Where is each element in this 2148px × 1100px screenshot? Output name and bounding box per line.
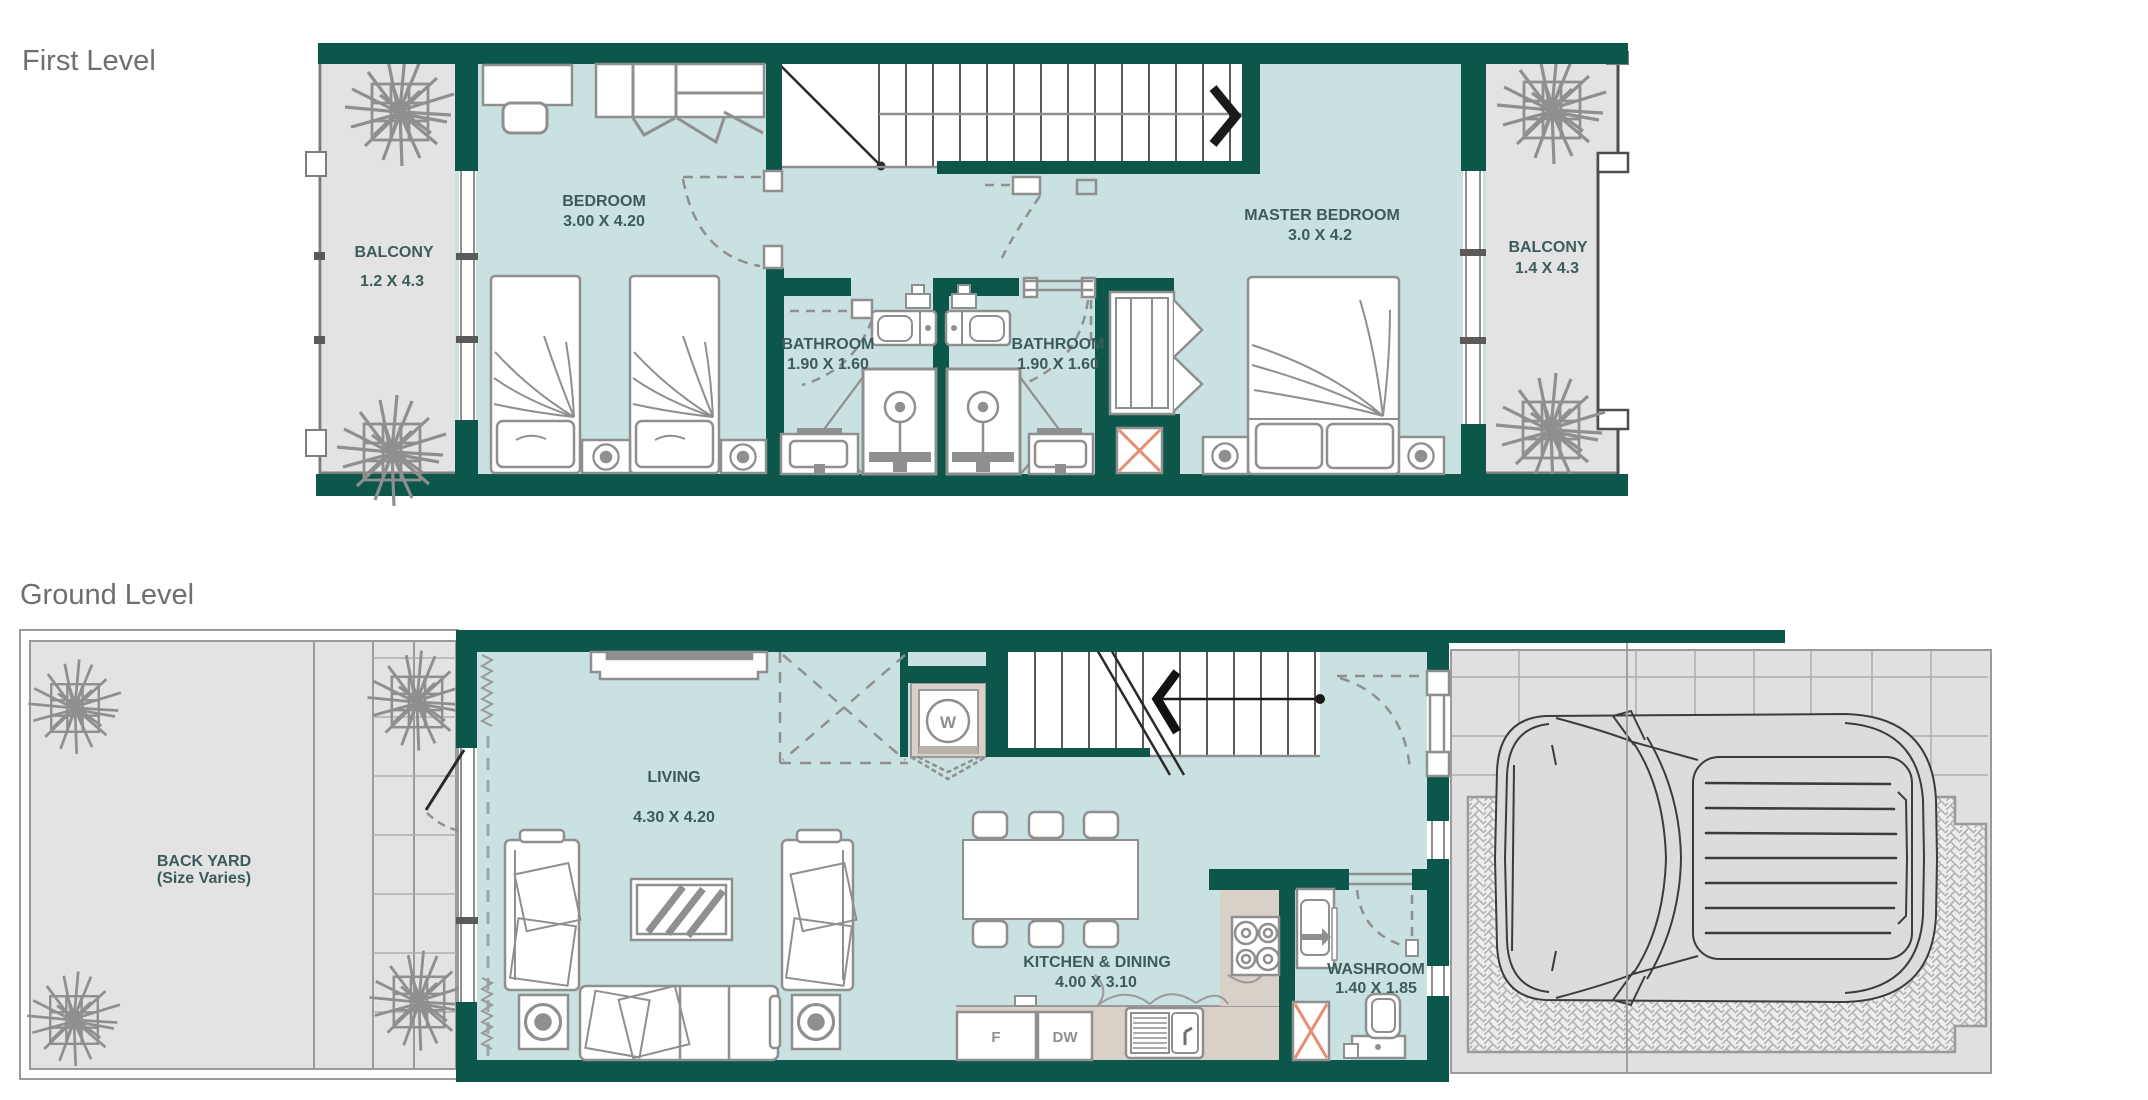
svg-text:4.30 X 4.20: 4.30 X 4.20 [633, 809, 715, 826]
svg-text:1.4 X 4.3: 1.4 X 4.3 [1515, 260, 1579, 277]
svg-text:WASHROOM: WASHROOM [1327, 961, 1425, 978]
svg-text:4.00 X 3.10: 4.00 X 3.10 [1055, 974, 1137, 991]
svg-text:Ground Level: Ground Level [20, 579, 194, 611]
svg-text:BACK YARD: BACK YARD [157, 853, 251, 870]
svg-text:3.0 X 4.2: 3.0 X 4.2 [1288, 227, 1352, 244]
svg-text:KITCHEN & DINING: KITCHEN & DINING [1023, 954, 1171, 971]
svg-text:3.00 X 4.20: 3.00 X 4.20 [563, 213, 645, 230]
svg-text:MASTER BEDROOM: MASTER BEDROOM [1244, 207, 1400, 224]
svg-text:1.2 X 4.3: 1.2 X 4.3 [360, 273, 424, 290]
svg-text:BALCONY: BALCONY [1508, 239, 1587, 256]
svg-text:W: W [940, 713, 957, 732]
svg-text:BATHROOM: BATHROOM [781, 336, 874, 353]
svg-text:1.90 X 1.60: 1.90 X 1.60 [787, 356, 869, 373]
svg-text:LIVING: LIVING [647, 769, 700, 786]
svg-text:F: F [991, 1029, 1000, 1046]
svg-text:1.90 X 1.60: 1.90 X 1.60 [1017, 356, 1099, 373]
svg-text:BATHROOM: BATHROOM [1011, 336, 1104, 353]
svg-text:DW: DW [1053, 1029, 1079, 1046]
svg-text:BALCONY: BALCONY [354, 244, 433, 261]
svg-text:1.40 X 1.85: 1.40 X 1.85 [1335, 980, 1417, 997]
svg-text:(Size Varies): (Size Varies) [157, 870, 251, 887]
svg-text:First Level: First Level [22, 45, 156, 77]
svg-text:BEDROOM: BEDROOM [562, 193, 646, 210]
